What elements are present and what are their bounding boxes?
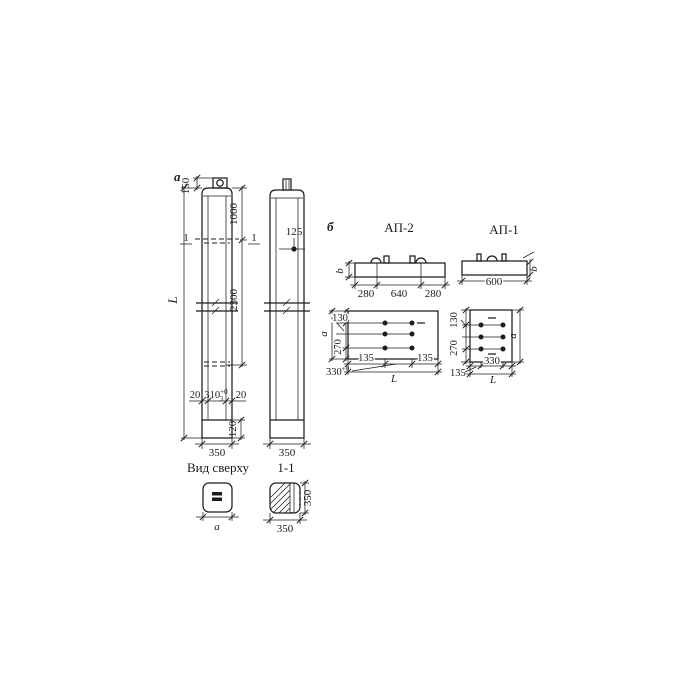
dim-280-left: 280 <box>358 288 375 300</box>
dim-a-width: a <box>214 521 220 533</box>
dim-ap2-plan-a: a <box>318 331 330 337</box>
loop-stub <box>410 256 415 263</box>
loop-stub <box>384 256 389 263</box>
dim-ap2-plan-L: L <box>390 373 397 385</box>
ap2-plan: a 130 270 135 135 330+0 L <box>318 308 442 385</box>
dim-2300: 2300 <box>228 289 240 312</box>
dim-ap1-plan-a: a <box>507 333 519 339</box>
loop-arc <box>487 256 497 261</box>
dim-1000: 1000 <box>228 203 240 226</box>
ap1-beam <box>462 261 527 275</box>
loop-stub <box>477 254 481 261</box>
top-view-title: Вид сверху <box>187 460 250 475</box>
loop-mark-1 <box>212 492 222 496</box>
dim-ap1-plan-L: L <box>489 374 496 386</box>
dim-ap1-270: 270 <box>449 340 460 356</box>
dim-col1-width: 350 <box>209 447 226 459</box>
dim-280-right: 280 <box>425 288 442 300</box>
loop-arc <box>416 258 426 263</box>
dim-wall-left: 20 <box>190 390 201 401</box>
ap1-plan: 130 270 a 330 135 L <box>449 307 524 386</box>
dim-ap2-270: 270 <box>333 339 344 355</box>
slot-value: 310 <box>204 390 220 401</box>
ap2-title: АП-2 <box>384 220 414 235</box>
dim-wall-right: 20 <box>236 390 247 401</box>
ap1-elevation: 600 b <box>457 252 540 288</box>
dim-section-width: 350 <box>277 523 294 535</box>
top-view: Вид сверху a <box>187 460 250 533</box>
dim-ap1-height-b: b <box>528 266 540 272</box>
panel-b-label: б <box>327 219 334 234</box>
loop-stub <box>502 254 506 261</box>
dim-640: 640 <box>391 288 408 300</box>
drawing-sheet: а 1 1 150 L <box>0 0 700 700</box>
column-side-view: 125 350 <box>263 179 311 459</box>
dim-ap2-height-b: b <box>334 268 346 274</box>
hole-marker <box>291 246 296 251</box>
ap1-title: АП-1 <box>489 222 519 237</box>
dim-135-left: 135 <box>358 353 374 364</box>
dim-125: 125 <box>286 226 303 238</box>
dim-ap1-130: 130 <box>449 312 460 328</box>
dim-600: 600 <box>486 276 503 288</box>
ap2-plan-outline <box>348 311 438 359</box>
dim-330-tol: 330+0 <box>326 365 350 378</box>
technical-drawing: а 1 1 150 L <box>0 0 700 700</box>
ap2-beam <box>355 263 445 277</box>
lifting-loop-hole <box>217 180 223 186</box>
dim-ap1-135: 135 <box>450 368 466 379</box>
section-title: 1-1 <box>277 460 294 475</box>
dim-section-height: 350 <box>302 489 314 506</box>
slot-tol-sub: 3 <box>220 395 224 403</box>
top-stud <box>283 179 291 190</box>
dim-ap1-330: 330 <box>484 356 500 367</box>
dim-col2-width: 350 <box>279 447 296 459</box>
section-mark-right: 1 <box>251 232 257 244</box>
loop-arc <box>371 258 381 263</box>
gap-value: 330 <box>326 367 342 378</box>
dim-ap2-130: 130 <box>332 313 348 324</box>
ap2-elevation: b 280 640 280 <box>334 256 450 300</box>
dim-135-right: 135 <box>417 353 433 364</box>
section-1-1: 1-1 350 350 <box>252 460 324 535</box>
dim-120: 120 <box>227 420 239 437</box>
column-front-view: а 1 1 150 L <box>165 169 260 459</box>
loop-mark-2 <box>212 498 222 502</box>
dim-length-L: L <box>165 296 180 304</box>
